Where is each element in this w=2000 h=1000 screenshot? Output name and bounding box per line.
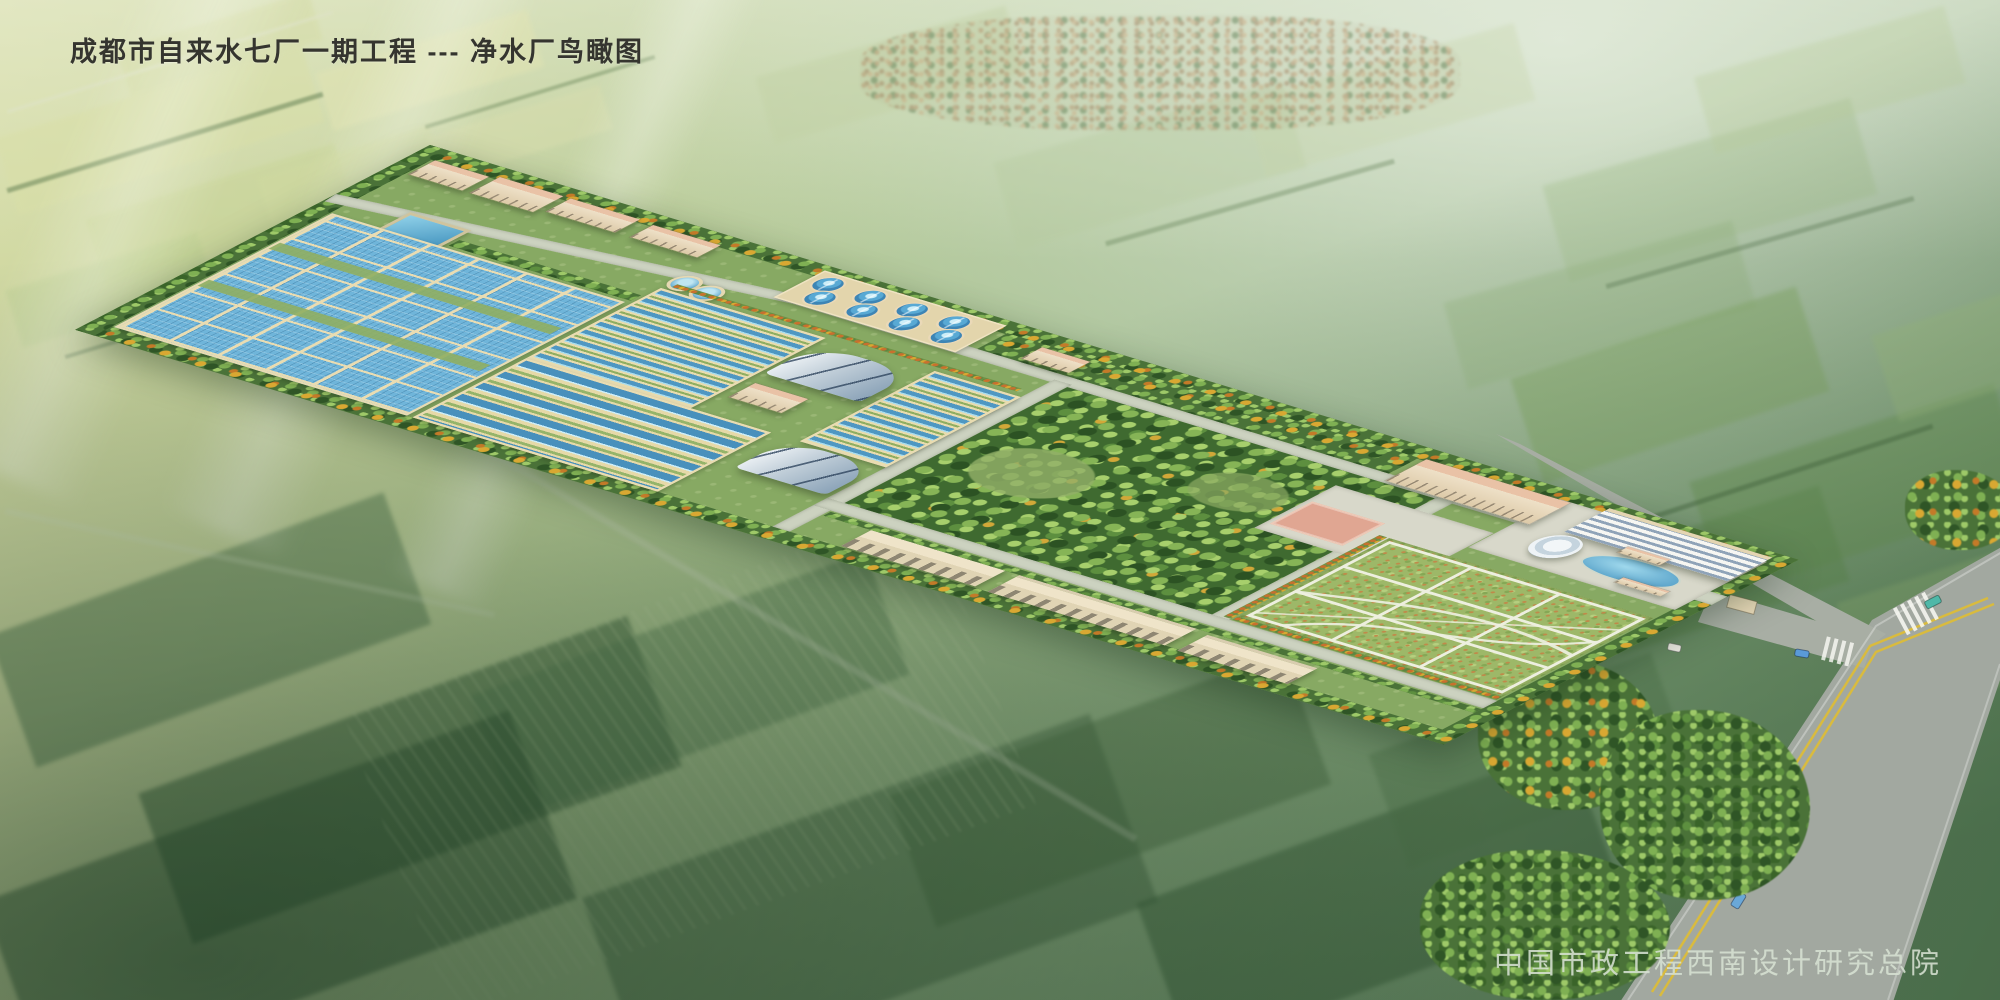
roadside-trees <box>1600 710 1810 900</box>
aerial-rendering-scene: 成都市自来水七厂一期工程 --- 净水厂鸟瞰图 中国市政工程西南设计研究总院 <box>0 0 2000 1000</box>
title-text: 成都市自来水七厂一期工程 --- 净水厂鸟瞰图 <box>70 30 644 69</box>
credit-text: 中国市政工程西南设计研究总院 <box>1494 940 1942 982</box>
lawn-grid-path <box>1343 566 1596 643</box>
roadside-trees <box>1905 470 2000 550</box>
small-building <box>727 382 810 413</box>
lawn-grid-path <box>1420 594 1560 667</box>
car <box>1667 643 1681 653</box>
